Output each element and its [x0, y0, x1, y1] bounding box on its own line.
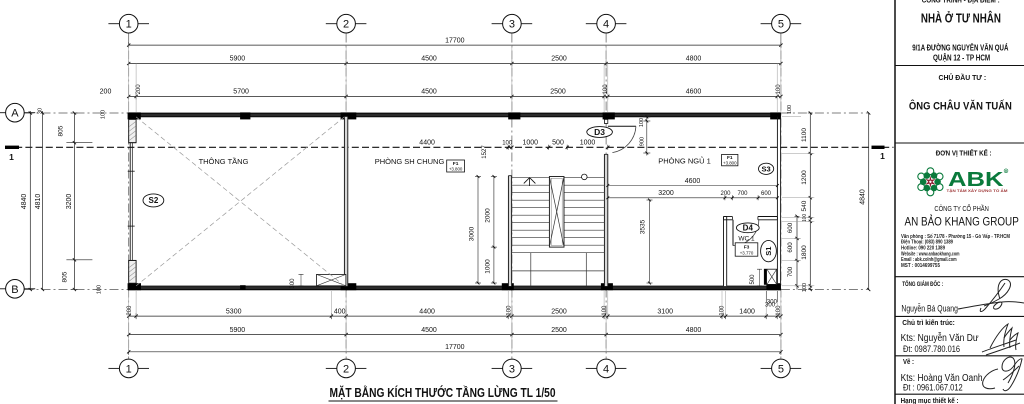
svg-text:500: 500 — [750, 274, 756, 285]
svg-text:B: B — [11, 284, 18, 296]
svg-text:5900: 5900 — [230, 56, 246, 63]
svg-text:1: 1 — [9, 152, 14, 162]
svg-text:2: 2 — [343, 363, 349, 375]
svg-text:200: 200 — [127, 305, 133, 316]
svg-text:2: 2 — [343, 19, 349, 31]
svg-text:3: 3 — [509, 19, 515, 31]
svg-text:17700: 17700 — [445, 344, 465, 351]
svg-text:540: 540 — [801, 200, 808, 211]
svg-text:ÔNG CHÂU VĂN TUẤN: ÔNG CHÂU VĂN TUẤN — [909, 99, 1012, 112]
svg-text:S3: S3 — [762, 164, 771, 173]
svg-text:200: 200 — [720, 191, 731, 197]
svg-text:1: 1 — [126, 363, 132, 375]
svg-text:CÔNG TRÌNH - ĐỊA ĐIỂM :: CÔNG TRÌNH - ĐỊA ĐIỂM : — [922, 0, 1000, 5]
svg-text:700: 700 — [737, 191, 748, 197]
svg-text:PHÒNG NGỦ 1: PHÒNG NGỦ 1 — [658, 157, 711, 166]
svg-text:400: 400 — [334, 308, 346, 315]
svg-text:900: 900 — [640, 137, 646, 146]
svg-text:D3: D3 — [594, 127, 605, 137]
svg-text:5900: 5900 — [230, 327, 246, 334]
svg-text:100: 100 — [787, 105, 793, 114]
svg-text:2000: 2000 — [484, 208, 491, 223]
svg-text:4500: 4500 — [421, 327, 437, 334]
svg-text:S2: S2 — [149, 196, 159, 205]
svg-text:AN BẢO KHANG GROUP: AN BẢO KHANG GROUP — [905, 216, 1020, 229]
svg-text:1000: 1000 — [523, 140, 539, 147]
svg-text:100: 100 — [502, 141, 513, 147]
svg-text:17700: 17700 — [445, 37, 465, 44]
svg-text:4810: 4810 — [35, 194, 42, 210]
svg-text:4500: 4500 — [421, 56, 437, 63]
svg-text:200: 200 — [100, 89, 112, 96]
svg-text:3535: 3535 — [640, 219, 647, 234]
svg-text:100: 100 — [506, 305, 512, 316]
svg-text:300: 300 — [290, 278, 296, 289]
svg-text:805: 805 — [62, 271, 69, 282]
svg-text:+3.800: +3.800 — [449, 167, 463, 172]
svg-text:2500: 2500 — [551, 308, 567, 315]
svg-text:4600: 4600 — [686, 89, 702, 96]
svg-text:700: 700 — [787, 266, 794, 277]
svg-text:+3.800: +3.800 — [723, 160, 737, 165]
svg-text:QUẬN 12 - TP HCM: QUẬN 12 - TP HCM — [933, 53, 990, 62]
svg-text:1400: 1400 — [739, 308, 755, 315]
svg-text:5300: 5300 — [226, 308, 242, 315]
svg-text:1200: 1200 — [801, 170, 808, 185]
svg-text:R: R — [1005, 169, 1007, 173]
svg-text:500: 500 — [552, 140, 564, 147]
svg-text:NHÀ Ở TƯ NHÂN: NHÀ Ở TƯ NHÂN — [921, 10, 1001, 25]
svg-text:S1: S1 — [764, 247, 773, 256]
svg-text:805: 805 — [58, 125, 65, 136]
svg-text:100: 100 — [802, 283, 808, 292]
svg-text:4400: 4400 — [419, 140, 435, 147]
svg-text:Chủ trì kiến trúc:: Chủ trì kiến trúc: — [902, 318, 955, 327]
svg-text:1: 1 — [880, 151, 885, 161]
svg-text:600: 600 — [761, 191, 772, 197]
svg-text:Vẽ :: Vẽ : — [903, 357, 914, 366]
svg-text:2500: 2500 — [551, 327, 567, 334]
svg-text:600: 600 — [787, 242, 794, 253]
svg-text:4500: 4500 — [421, 89, 437, 96]
svg-text:1100: 1100 — [801, 128, 808, 142]
svg-text:4840: 4840 — [860, 189, 867, 205]
svg-text:CHỦ ĐẦU TƯ :: CHỦ ĐẦU TƯ : — [939, 72, 987, 82]
svg-text:Nguyễn Bá Quang: Nguyễn Bá Quang — [901, 304, 958, 314]
svg-text:MST : 0014699755: MST : 0014699755 — [901, 263, 940, 269]
svg-text:100: 100 — [101, 110, 107, 119]
svg-text:5: 5 — [778, 363, 784, 375]
svg-text:100: 100 — [639, 118, 645, 127]
svg-text:4: 4 — [603, 363, 609, 375]
svg-text:100: 100 — [602, 305, 608, 316]
svg-text:4800: 4800 — [686, 56, 702, 63]
svg-text:WC 1: WC 1 — [738, 235, 755, 242]
svg-text:3200: 3200 — [658, 190, 674, 197]
svg-text:200: 200 — [136, 84, 142, 95]
svg-text:300: 300 — [765, 303, 776, 309]
svg-text:9/1A ĐƯỜNG NGUYỄN VĂN QUÁ: 9/1A ĐƯỜNG NGUYỄN VĂN QUÁ — [912, 44, 1008, 53]
svg-text:4400: 4400 — [419, 308, 435, 315]
svg-text:100: 100 — [97, 285, 103, 294]
svg-text:1527: 1527 — [482, 145, 488, 159]
svg-text:5: 5 — [778, 19, 784, 31]
svg-text:MẶT BẰNG KÍCH THƯỚC TẦNG LỪNG: MẶT BẰNG KÍCH THƯỚC TẦNG LỪNG TL 1/50 — [330, 385, 556, 400]
svg-text:30: 30 — [38, 108, 44, 114]
svg-text:2500: 2500 — [550, 89, 566, 96]
svg-text:600: 600 — [787, 222, 794, 233]
svg-text:3000: 3000 — [469, 226, 476, 241]
svg-text:2500: 2500 — [551, 56, 567, 63]
svg-text:Đt : 0961.067.012: Đt : 0961.067.012 — [903, 383, 963, 393]
svg-text:3100: 3100 — [657, 308, 673, 315]
svg-text:Đt: 0987.780.016: Đt: 0987.780.016 — [903, 344, 960, 354]
svg-text:5700: 5700 — [233, 89, 249, 96]
svg-text:Hạng mục thiết kế :: Hạng mục thiết kế : — [901, 396, 959, 404]
svg-text:1800: 1800 — [801, 245, 808, 260]
svg-text:1000: 1000 — [484, 259, 491, 274]
svg-text:TẬN TÂM XÂY DỰNG TỔ ẤM: TẬN TÂM XÂY DỰNG TỔ ẤM — [947, 188, 1009, 193]
svg-text:4800: 4800 — [686, 327, 702, 334]
svg-text:4840: 4840 — [21, 194, 28, 210]
svg-text:+3.770: +3.770 — [740, 251, 754, 256]
svg-text:4600: 4600 — [685, 178, 701, 185]
svg-text:Kts: Nguyễn Văn Dư: Kts: Nguyễn Văn Dư — [901, 333, 979, 344]
svg-text:ĐƠN VỊ THIẾT KẾ :: ĐƠN VỊ THIẾT KẾ : — [936, 148, 992, 158]
svg-text:100: 100 — [719, 305, 725, 316]
svg-text:F3: F3 — [744, 244, 750, 250]
svg-text:PHÒNG SH CHUNG: PHÒNG SH CHUNG — [375, 157, 445, 166]
svg-text:A: A — [11, 108, 19, 120]
svg-text:D4: D4 — [743, 224, 754, 233]
svg-text:3: 3 — [509, 363, 515, 375]
svg-text:THÔNG TẦNG: THÔNG TẦNG — [199, 156, 249, 166]
svg-text:100: 100 — [802, 214, 808, 223]
svg-text:4: 4 — [603, 19, 609, 31]
svg-text:3200: 3200 — [66, 194, 73, 210]
svg-text:1: 1 — [126, 19, 132, 31]
svg-text:1000: 1000 — [580, 140, 596, 147]
